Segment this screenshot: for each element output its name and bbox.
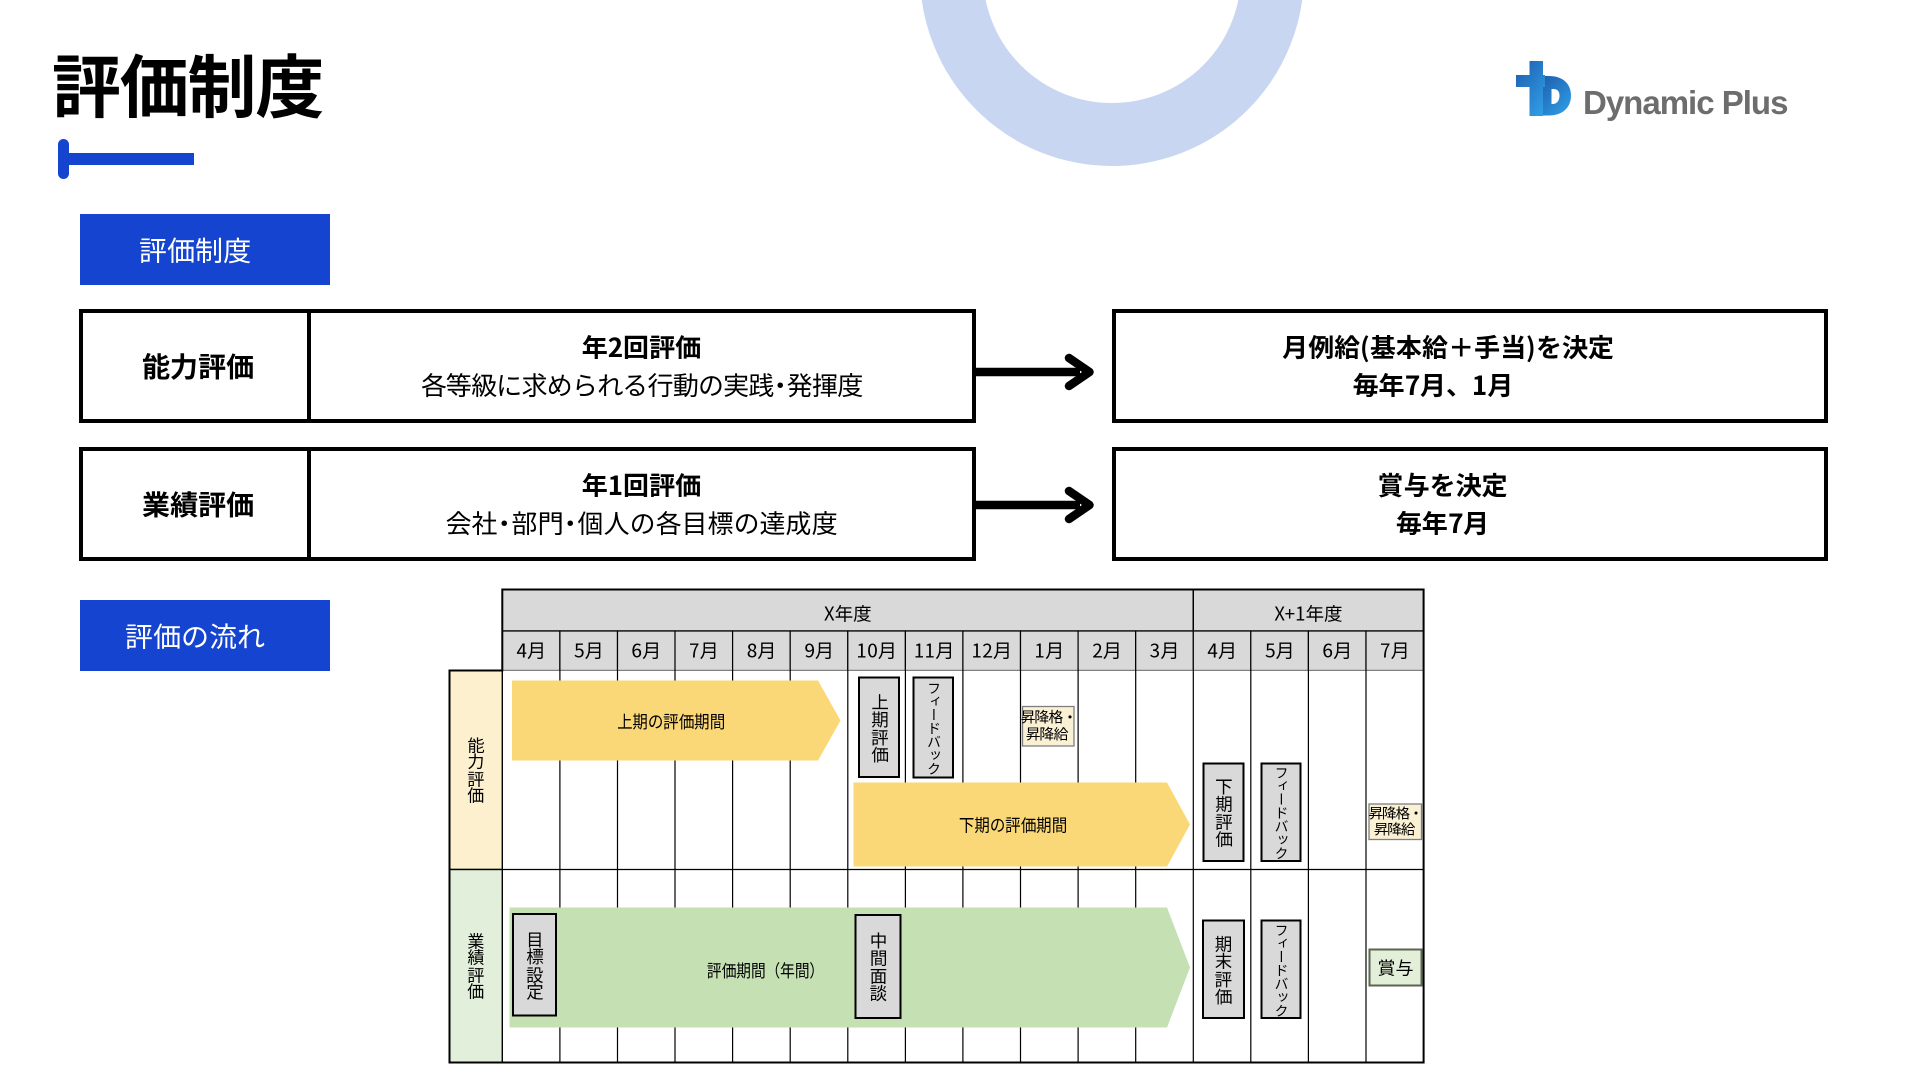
svg-text:X年度: X年度 (824, 601, 872, 627)
svg-text:9月: 9月 (804, 637, 834, 664)
svg-text:3月: 3月 (1150, 637, 1180, 664)
svg-text:賞与: 賞与 (1378, 955, 1414, 981)
svg-text:期末評価: 期末評価 (1211, 935, 1236, 1005)
svg-text:7月: 7月 (689, 637, 719, 664)
svg-text:業績評価: 業績評価 (463, 932, 488, 1000)
svg-text:目標設定: 目標設定 (523, 930, 548, 1000)
svg-text:上期評価: 上期評価 (868, 693, 893, 763)
svg-text:評価期間（年間）: 評価期間（年間） (707, 958, 824, 983)
svg-text:中間面談: 中間面談 (866, 932, 891, 1002)
svg-text:下期評価: 下期評価 (1212, 777, 1237, 847)
svg-text:上期の評価期間: 上期の評価期間 (617, 709, 725, 734)
svg-text:5月: 5月 (1265, 637, 1295, 664)
svg-text:12月: 12月 (972, 637, 1012, 664)
svg-text:6月: 6月 (631, 637, 661, 664)
svg-text:能力評価: 能力評価 (463, 736, 488, 804)
svg-text:4月: 4月 (516, 637, 546, 664)
svg-text:11月: 11月 (914, 637, 954, 664)
svg-text:2月: 2月 (1092, 637, 1122, 664)
svg-text:1月: 1月 (1035, 637, 1065, 664)
svg-text:下期の評価期間: 下期の評価期間 (959, 813, 1067, 838)
svg-text:5月: 5月 (574, 637, 604, 664)
svg-text:10月: 10月 (857, 637, 897, 664)
svg-text:フィードバック: フィードバック (924, 681, 944, 775)
svg-text:8月: 8月 (747, 637, 777, 664)
svg-text:6月: 6月 (1322, 637, 1352, 664)
svg-text:X+1年度: X+1年度 (1274, 601, 1342, 627)
svg-text:昇降給: 昇降給 (1025, 724, 1068, 745)
svg-text:昇降給: 昇降給 (1374, 819, 1416, 840)
svg-text:フィードバック: フィードバック (1272, 765, 1292, 859)
svg-text:7月: 7月 (1380, 637, 1410, 664)
svg-text:フィードバック: フィードバック (1272, 923, 1292, 1017)
svg-text:4月: 4月 (1207, 637, 1237, 664)
